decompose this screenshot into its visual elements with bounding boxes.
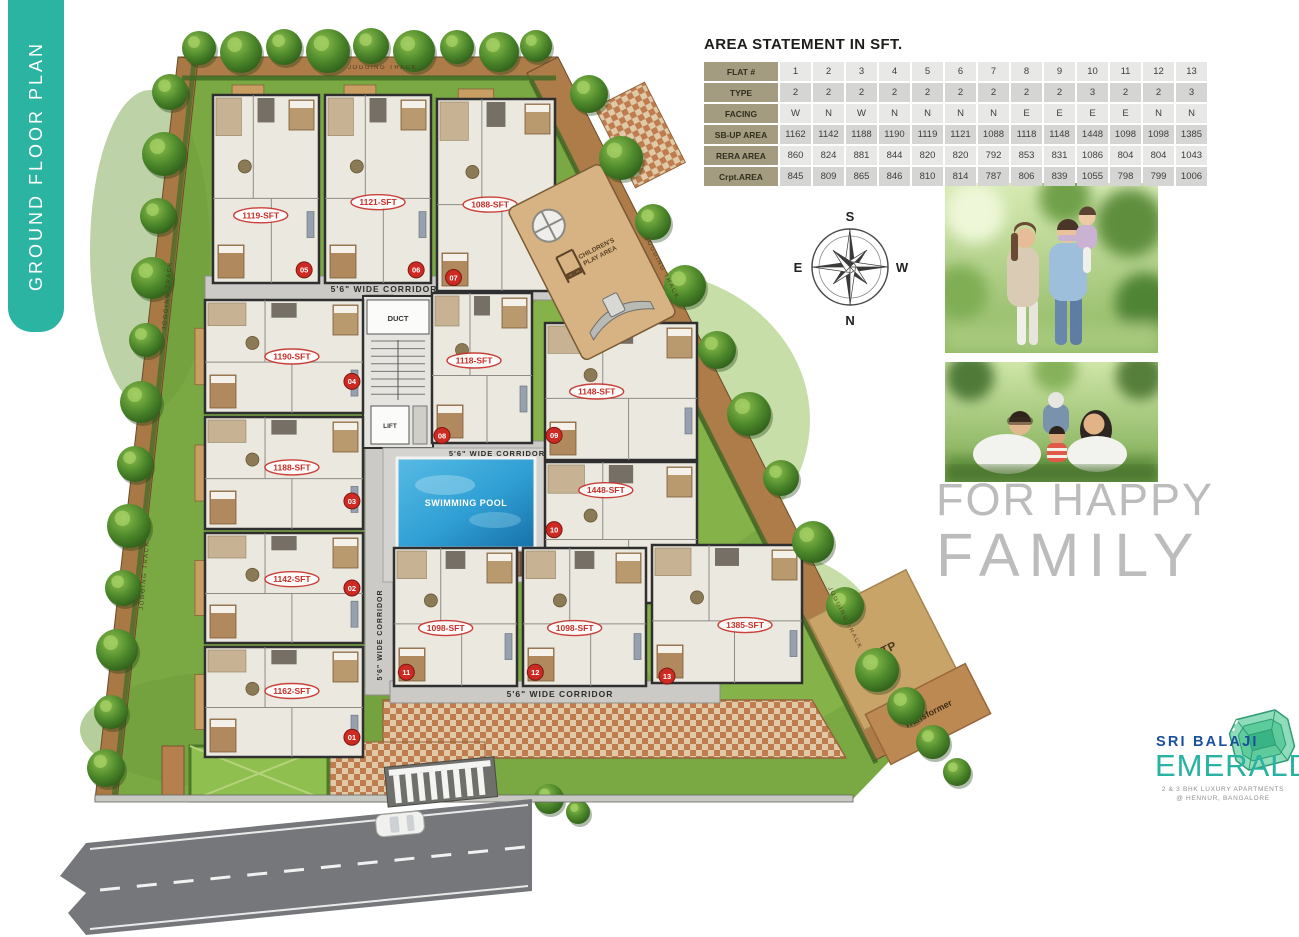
unit-area-label: 1142-SFT	[273, 574, 311, 584]
corridor-label: 5'6" WIDE CORRIDOR	[507, 689, 614, 699]
apartment-unit: 1098-SFT11	[394, 548, 517, 686]
tree-icon	[943, 758, 973, 789]
table-cell: 1098	[1143, 125, 1174, 144]
tree-icon	[566, 800, 592, 827]
table-cell: 13	[1176, 62, 1207, 81]
apartment-unit: 1119-SFT05	[213, 85, 319, 283]
table-cell: 12	[1143, 62, 1174, 81]
stair-core: DUCT LIFT	[363, 296, 433, 448]
apartment-unit: 1148-SFT09	[545, 323, 697, 460]
table-cell: 1162	[780, 125, 811, 144]
table-cell: 11	[1110, 62, 1141, 81]
family-photo-1	[945, 183, 1158, 353]
table-cell: 787	[978, 167, 1009, 186]
table-cell: E	[1011, 104, 1042, 123]
apartment-unit: 1142-SFT02	[195, 533, 363, 643]
compass-s: S	[846, 209, 855, 224]
unit-number: 13	[663, 672, 671, 681]
table-cell: 2	[813, 62, 844, 81]
table-cell: E	[1110, 104, 1141, 123]
table-cell: 853	[1011, 146, 1042, 165]
unit-number: 10	[550, 525, 558, 534]
unit-area-label: 1098-SFT	[556, 623, 595, 633]
table-cell: 1086	[1077, 146, 1108, 165]
table-cell: 881	[846, 146, 877, 165]
table-cell: 7	[978, 62, 1009, 81]
table-row: FACINGWNWNNNNEEEENN	[704, 104, 1207, 123]
row-header: FLAT #	[704, 62, 778, 81]
family-photo-2	[945, 362, 1158, 482]
ground-floor-plan-banner: GROUND FLOOR PLAN	[8, 0, 64, 332]
table-cell: 6	[945, 62, 976, 81]
table-cell: 1190	[879, 125, 910, 144]
compass-e: E	[794, 260, 803, 275]
table-cell: W	[780, 104, 811, 123]
brand-subline-1: 2 & 3 BHK LUXURY APARTMENTS	[1148, 786, 1298, 793]
table-cell: 2	[846, 83, 877, 102]
table-cell: 2	[1044, 83, 1075, 102]
unit-number: 04	[348, 377, 357, 386]
table-cell: 2	[813, 83, 844, 102]
apartment-unit: 1190-SFT04	[195, 300, 363, 413]
table-cell: 5	[912, 62, 943, 81]
table-cell: 798	[1110, 167, 1141, 186]
table-cell: 2	[1011, 83, 1042, 102]
swimming-pool-label: SWIMMING POOL	[425, 498, 508, 508]
unit-number: 09	[550, 431, 558, 440]
table-cell: 1006	[1176, 167, 1207, 186]
table-cell: 804	[1143, 146, 1174, 165]
table-cell: 844	[879, 146, 910, 165]
brand-subline-2: @ HENNUR, BANGALORE	[1148, 795, 1298, 802]
table-cell: 814	[945, 167, 976, 186]
row-header: TYPE	[704, 83, 778, 102]
table-row: FLAT #12345678910111213	[704, 62, 1207, 81]
table-cell: 9	[1044, 62, 1075, 81]
row-header: SB-UP AREA	[704, 125, 778, 144]
unit-area-label: 1118-SFT	[456, 356, 494, 366]
unit-number: 11	[402, 668, 410, 677]
table-cell: 8	[1011, 62, 1042, 81]
unit-area-label: 1162-SFT	[273, 686, 311, 696]
table-row: RERA AREA8608248818448208207928538311086…	[704, 146, 1207, 165]
area-statement-title: AREA STATEMENT IN SFT.	[704, 36, 1209, 53]
table-cell: 3	[1176, 83, 1207, 102]
unit-area-label: 1188-SFT	[273, 462, 311, 472]
table-cell: 824	[813, 146, 844, 165]
area-statement-panel: AREA STATEMENT IN SFT. FLAT #12345678910…	[702, 36, 1209, 188]
unit-area-label: 1190-SFT	[273, 352, 311, 362]
unit-number: 07	[449, 273, 457, 282]
unit-number: 05	[300, 266, 308, 275]
table-cell: 2	[978, 83, 1009, 102]
table-cell: 2	[780, 83, 811, 102]
table-row: TYPE2222222223223	[704, 83, 1207, 102]
table-cell: 1385	[1176, 125, 1207, 144]
unit-number: 03	[348, 497, 356, 506]
table-cell: 2	[945, 83, 976, 102]
row-header: FACING	[704, 104, 778, 123]
table-cell: W	[846, 104, 877, 123]
table-cell: 10	[1077, 62, 1108, 81]
unit-number: 08	[438, 431, 446, 440]
table-cell: N	[978, 104, 1009, 123]
row-header: Crpt.AREA	[704, 167, 778, 186]
table-cell: 1088	[978, 125, 1009, 144]
table-cell: N	[813, 104, 844, 123]
unit-number: 06	[412, 266, 420, 275]
unit-area-label: 1098-SFT	[427, 623, 466, 633]
unit-area-label: 1088-SFT	[471, 200, 510, 210]
unit-area-label: 1385-SFT	[726, 620, 765, 630]
area-statement-table: FLAT #12345678910111213TYPE2222222223223…	[702, 60, 1209, 188]
table-cell: 1098	[1110, 125, 1141, 144]
table-cell: 4	[879, 62, 910, 81]
table-cell: 1448	[1077, 125, 1108, 144]
apartment-unit: 1121-SFT06	[325, 85, 431, 283]
table-cell: 2	[1143, 83, 1174, 102]
compass-n: N	[845, 313, 854, 328]
corridor-label: 5'6" WIDE CORRIDOR	[449, 449, 545, 458]
table-cell: 1	[780, 62, 811, 81]
table-cell: 846	[879, 167, 910, 186]
lift-label: LIFT	[383, 423, 397, 430]
apartment-unit: 1162-SFT01	[195, 647, 363, 757]
tagline-line-2: FAMILY	[936, 525, 1214, 586]
table-cell: E	[1044, 104, 1075, 123]
apartment-unit: 1098-SFT12	[523, 548, 646, 686]
apartment-unit: 1118-SFT08	[432, 293, 532, 444]
table-cell: 1148	[1044, 125, 1075, 144]
table-cell: 831	[1044, 146, 1075, 165]
table-cell: E	[1077, 104, 1108, 123]
table-row: Crpt.AREA8458098658468108147878068391055…	[704, 167, 1207, 186]
table-cell: 820	[912, 146, 943, 165]
table-cell: N	[1176, 104, 1207, 123]
jogging-track-label: JOGGING TRACK	[348, 65, 417, 71]
brand-logo: SRI BALAJI EMERALD 2 & 3 BHK LUXURY APAR…	[1148, 692, 1299, 837]
table-row: SB-UP AREA116211421188119011191121108811…	[704, 125, 1207, 144]
table-cell: N	[912, 104, 943, 123]
tagline: FOR HAPPY FAMILY	[936, 477, 1214, 586]
corridor-label: 5'6" WIDE CORRIDOR	[331, 284, 438, 294]
table-cell: 1188	[846, 125, 877, 144]
row-header: RERA AREA	[704, 146, 778, 165]
table-cell: 860	[780, 146, 811, 165]
apartment-unit: 1385-SFT13	[652, 545, 802, 684]
table-cell: 1119	[912, 125, 943, 144]
table-cell: 3	[1077, 83, 1108, 102]
unit-area-label: 1119-SFT	[242, 210, 280, 220]
table-cell: 3	[846, 62, 877, 81]
table-cell: 2	[1110, 83, 1141, 102]
brand-name-main: EMERALD	[1155, 748, 1299, 784]
unit-number: 02	[348, 584, 356, 593]
unit-area-label: 1448-SFT	[587, 485, 626, 495]
table-cell: N	[1143, 104, 1174, 123]
table-cell: 2	[912, 83, 943, 102]
corridor-label: 5'6" WIDE CORRIDOR	[377, 589, 384, 680]
tagline-line-1: FOR HAPPY	[936, 477, 1214, 522]
table-cell: 2	[879, 83, 910, 102]
table-cell: 799	[1143, 167, 1174, 186]
car	[375, 811, 425, 837]
table-cell: 806	[1011, 167, 1042, 186]
table-cell: 865	[846, 167, 877, 186]
compass-rose: S N E W	[794, 209, 909, 328]
table-cell: 804	[1110, 146, 1141, 165]
unit-area-label: 1121-SFT	[359, 197, 397, 207]
table-cell: 839	[1044, 167, 1075, 186]
table-cell: 1121	[945, 125, 976, 144]
duct-label: DUCT	[388, 314, 409, 323]
table-cell: 820	[945, 146, 976, 165]
table-cell: 809	[813, 167, 844, 186]
table-cell: 1118	[1011, 125, 1042, 144]
banner-label: GROUND FLOOR PLAN	[26, 41, 47, 291]
road	[60, 799, 532, 935]
table-cell: 810	[912, 167, 943, 186]
unit-number: 01	[348, 733, 356, 742]
table-cell: 845	[780, 167, 811, 186]
table-cell: 792	[978, 146, 1009, 165]
table-cell: 1043	[1176, 146, 1207, 165]
unit-area-label: 1148-SFT	[578, 387, 616, 397]
compass-w: W	[896, 260, 909, 275]
table-cell: 1055	[1077, 167, 1108, 186]
table-cell: 1142	[813, 125, 844, 144]
unit-number: 12	[531, 668, 539, 677]
apartment-unit: 1188-SFT03	[195, 417, 363, 529]
table-cell: N	[879, 104, 910, 123]
table-cell: N	[945, 104, 976, 123]
